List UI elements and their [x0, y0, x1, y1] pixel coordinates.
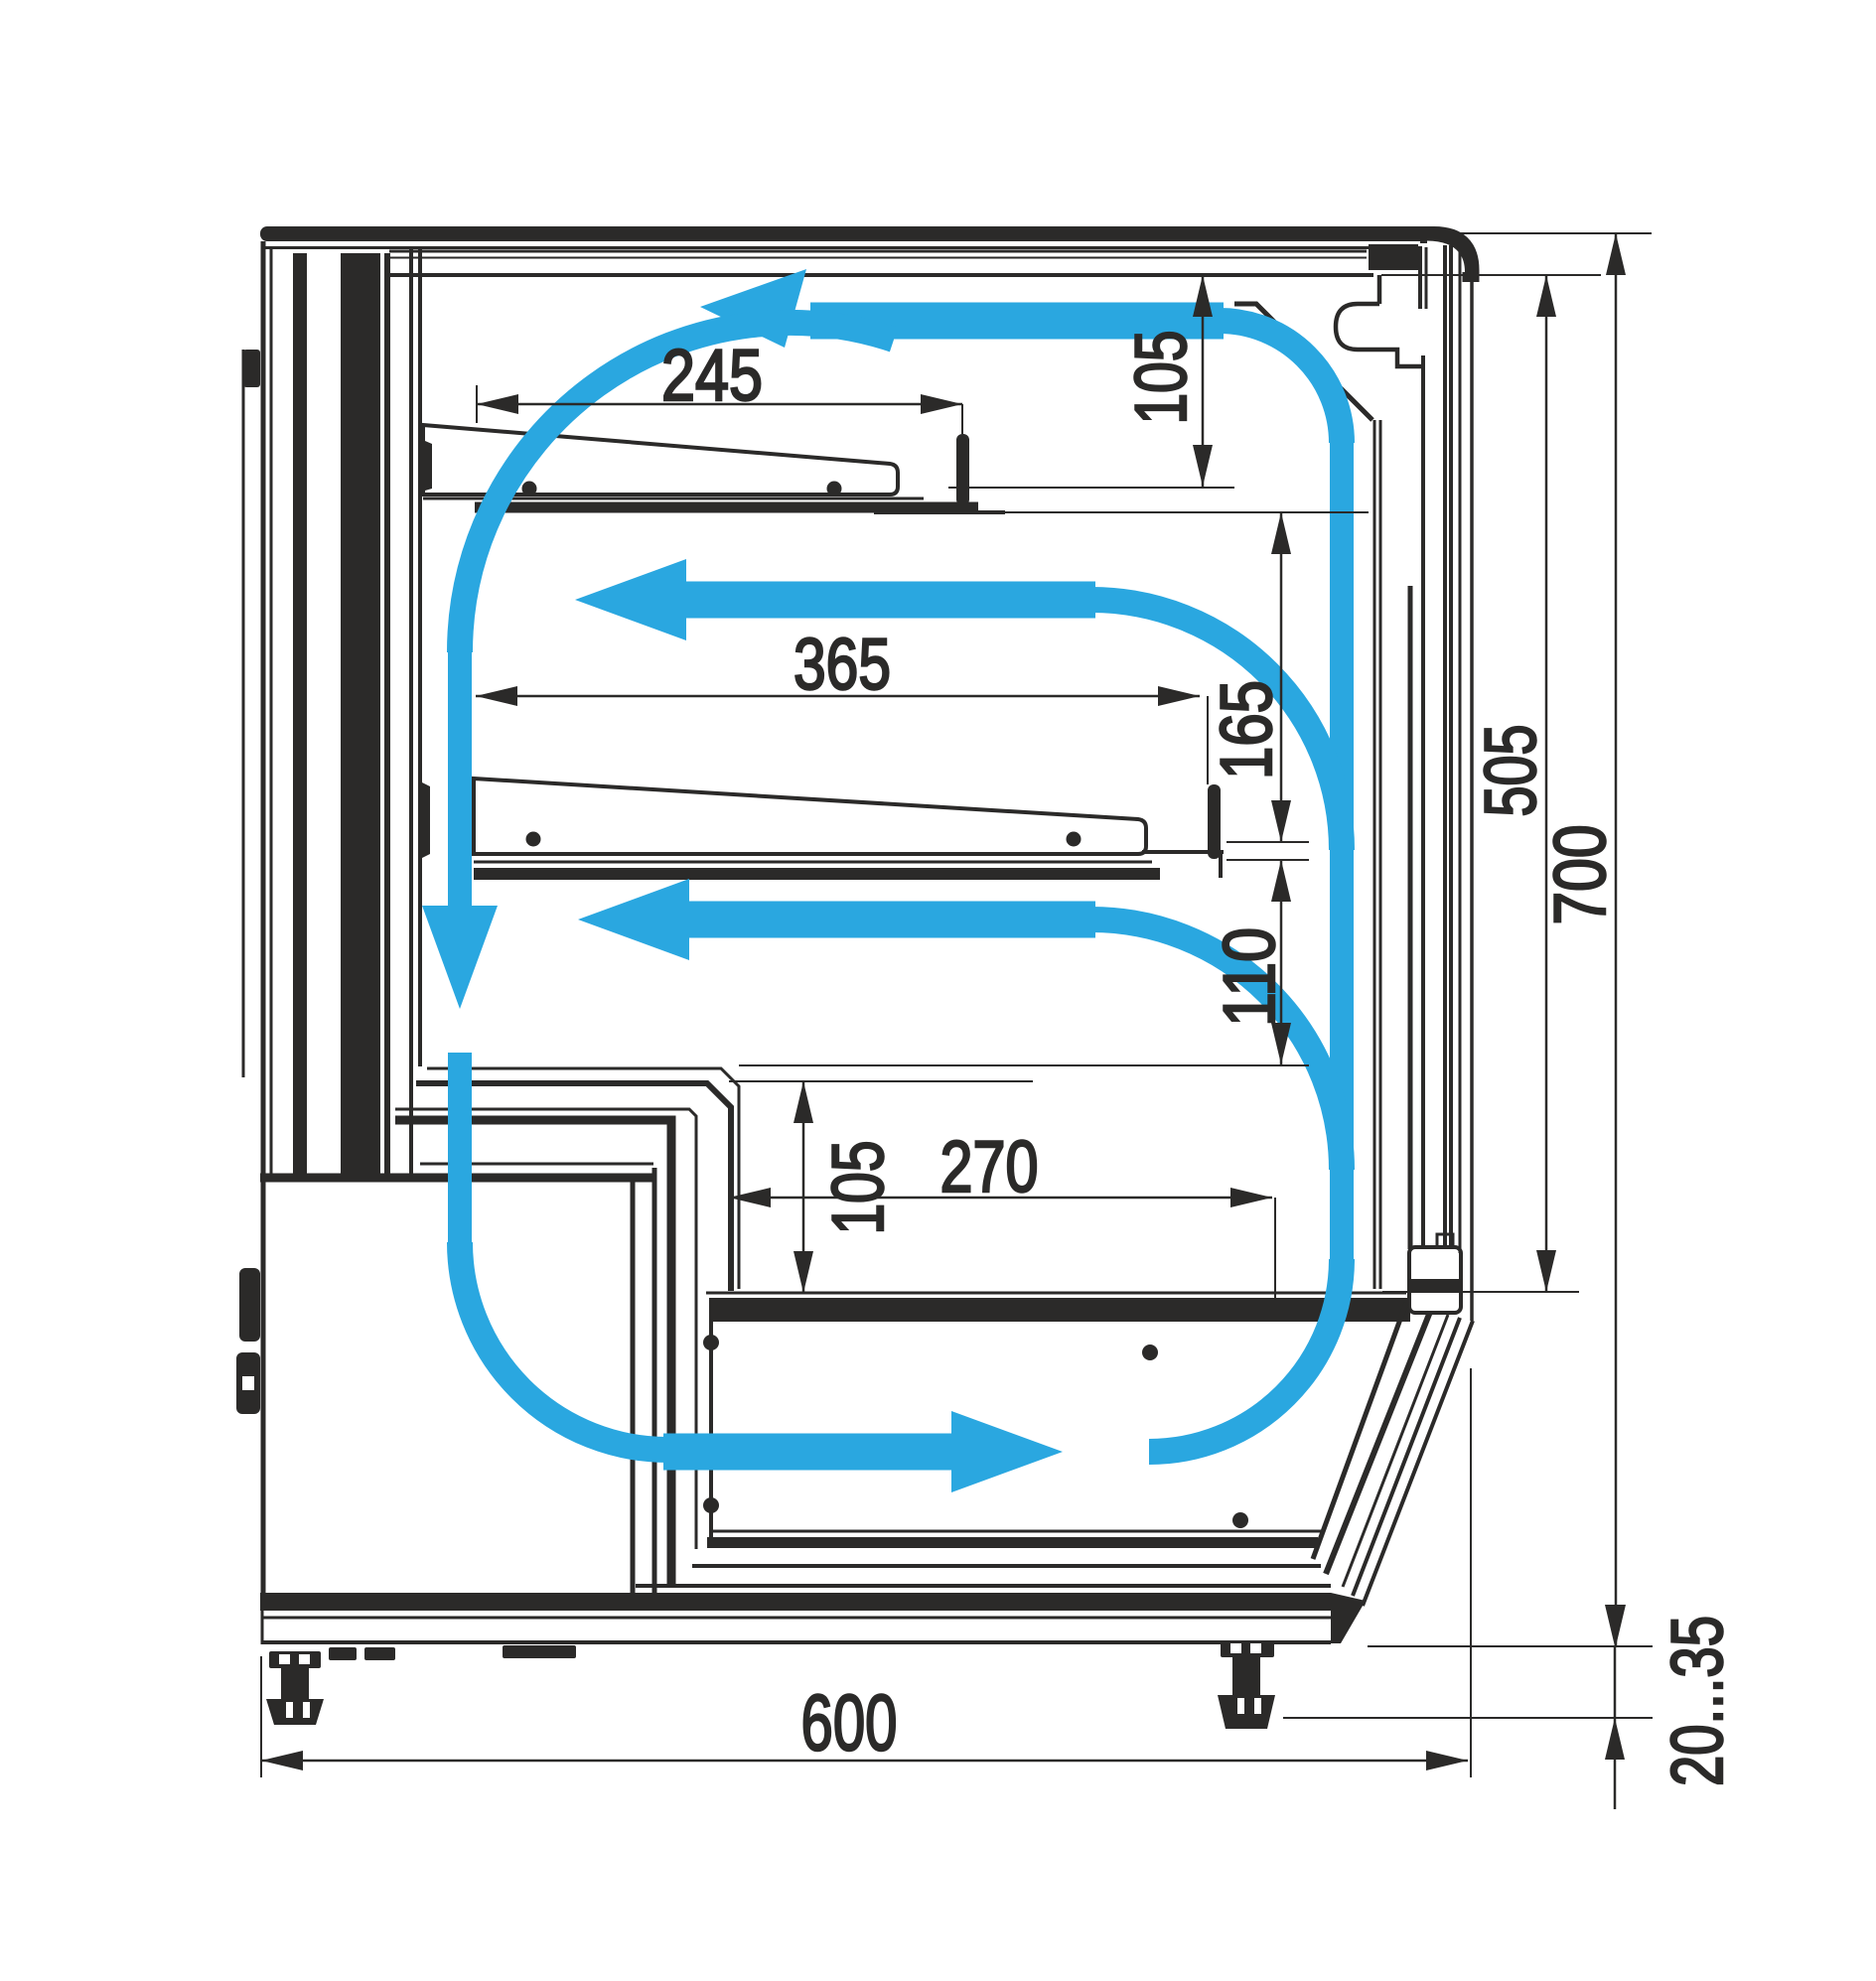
svg-text:165: 165 [1207, 680, 1287, 779]
svg-text:105: 105 [818, 1141, 899, 1235]
svg-text:700: 700 [1540, 825, 1621, 925]
svg-text:20...35: 20...35 [1658, 1616, 1738, 1786]
svg-text:105: 105 [1121, 331, 1202, 425]
svg-text:245: 245 [661, 336, 763, 416]
svg-text:110: 110 [1210, 927, 1290, 1027]
svg-text:505: 505 [1471, 725, 1551, 817]
svg-text:365: 365 [794, 625, 891, 705]
svg-text:270: 270 [940, 1127, 1039, 1207]
svg-text:600: 600 [801, 1678, 898, 1767]
